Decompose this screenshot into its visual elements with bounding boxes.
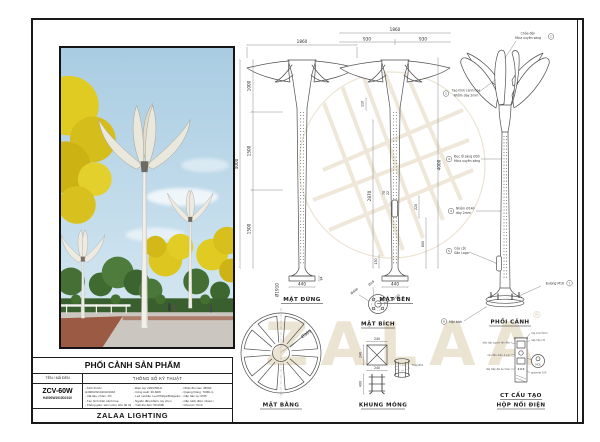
perspective-view: Chóa đèn Mica xuyên sáng 1 2 Tạo hình cá… [441,32,572,327]
callout-bolt: Bulong M16 7 [518,280,572,296]
svg-text:220: 220 [414,204,418,210]
model-code: ZCV-60W [33,388,82,395]
svg-text:dây cấp nguồn lên đèn: dây cấp nguồn lên đèn [483,342,511,345]
svg-text:MCB: MCB [535,364,541,367]
svg-text:Mặt bích: Mặt bích [449,320,462,324]
red-strip [123,316,233,320]
svg-text:1860: 1860 [390,27,401,32]
svg-text:4: 4 [448,157,450,161]
foundation-label: KHUNG MÓNG [359,402,407,409]
model-dimensions-code: H4000W1910D1910 [33,396,82,400]
svg-text:Mica xuyên sáng: Mica xuyên sáng [515,36,541,40]
svg-text:Thép Ø16: Thép Ø16 [412,364,424,367]
front-view-label: MẶT ĐỨNG [283,296,321,303]
svg-text:Nhôm Ø140: Nhôm Ø140 [456,206,475,211]
perspective-view-label: PHỐI CẢNH [491,318,530,326]
callout-door: 5 Cửa cột Gắn Logo [446,247,496,264]
svg-text:dây tiếp địa an toàn: dây tiếp địa an toàn [486,368,511,371]
svg-text:110: 110 [361,101,365,107]
svg-text:Mica xuyên sáng: Mica xuyên sáng [454,159,480,163]
svg-text:7: 7 [569,281,571,285]
svg-text:5: 5 [448,249,450,253]
product-render-photo [59,46,235,349]
svg-text:cầu đấu điện 4 cực: cầu đấu điện 4 cực [487,354,510,357]
svg-text:1: 1 [550,35,552,39]
svg-text:Nhôm dày 2mm: Nhôm dày 2mm [454,94,479,98]
svg-text:cáp 2x2.5mm: cáp 2x2.5mm [531,332,548,335]
svg-text:4000: 4000 [234,158,239,169]
specs-column-3: - Nhiệt độ màu: 4500K - Quang thông: 700… [182,386,230,408]
technical-drawings: ZALAA ® 1860 440 94 1000 1500 1500 4000 [233,20,582,422]
svg-text:Tạo hình cánh hoa: Tạo hình cánh hoa [451,89,481,93]
svg-text:Ø18: Ø18 [367,279,375,287]
svg-text:Đục lỗ sáng Ø30: Đục lỗ sáng Ø30 [454,154,480,159]
svg-text:Gắn Logo: Gắn Logo [454,250,469,255]
junction-label-2: HỘP NỐI ĐIỆN [496,401,545,409]
svg-text:3: 3 [450,209,452,213]
svg-text:1500: 1500 [247,145,252,156]
title-block-header: PHỐI CẢNH SẢN PHẨM [33,358,232,374]
svg-text:6: 6 [443,320,445,324]
svg-text:130: 130 [374,258,378,264]
svg-text:aptomat 10A: aptomat 10A [531,372,547,375]
brand-name: ZALAA LIGHTING [33,409,232,423]
svg-text:Ø1910: Ø1910 [275,283,280,297]
svg-text:2870: 2870 [367,190,372,201]
specs-column-2: - Điện áp: 220V/50Hz - Công suất: 30-60W… [133,386,181,408]
svg-text:440: 440 [391,282,399,287]
svg-text:Ø440: Ø440 [349,286,359,295]
model-name-header: TÊN / MÃ ĐÈN [33,374,82,384]
svg-text:Bulong M16: Bulong M16 [546,282,564,286]
svg-text:930: 930 [419,37,427,42]
svg-text:dày 2mm: dày 2mm [456,211,471,215]
svg-text:600: 600 [421,241,425,247]
svg-text:240: 240 [359,352,363,358]
callout-pole-material: 3 Nhôm Ø140 dày 2mm [448,206,500,216]
specs-header: THÔNG SỐ KỸ THUẬT [83,374,232,384]
svg-text:Chóa đèn: Chóa đèn [521,32,536,36]
svg-text:240: 240 [374,366,380,370]
junction-label-1: CT CẤU TẠO [500,391,542,399]
svg-text:1000: 1000 [247,80,252,91]
svg-text:400: 400 [359,381,363,387]
specs-column-1: - Kích thước: H4000xW1910xD1910 - Vật li… [85,386,133,408]
flange-label: MẶT BÍCH [361,320,395,328]
svg-text:1500: 1500 [247,223,252,234]
photo-scene [61,48,233,347]
spec-sheet: ZALAA ® 1860 440 94 1000 1500 1500 4000 [31,18,584,424]
svg-text:440: 440 [298,282,306,287]
title-block: PHỐI CẢNH SẢN PHẨM TÊN / MÃ ĐÈN ZCV-60W … [33,357,233,422]
front-elevation-view: 1860 440 94 1000 1500 1500 4000 MẶT ĐỨNG [234,39,357,304]
svg-text:Cửa cột: Cửa cột [454,247,467,251]
svg-text:2: 2 [445,92,447,96]
callout-perforation: 4 Đục lỗ sáng Ø30 Mica xuyên sáng [446,154,502,164]
svg-text:nắp hộp nối: nắp hộp nối [531,339,545,342]
svg-text:930: 930 [363,37,371,42]
plan-view-label: MẶT BẰNG [263,401,300,409]
svg-text:22: 22 [386,191,390,195]
svg-text:94: 94 [320,276,324,280]
svg-text:1860: 1860 [297,39,308,44]
registered-mark: ® [532,310,542,321]
svg-text:4000: 4000 [437,159,442,170]
svg-text:240: 240 [374,337,380,341]
specs-table: - Kích thước: H4000xW1910xD1910 - Vật li… [83,384,232,409]
